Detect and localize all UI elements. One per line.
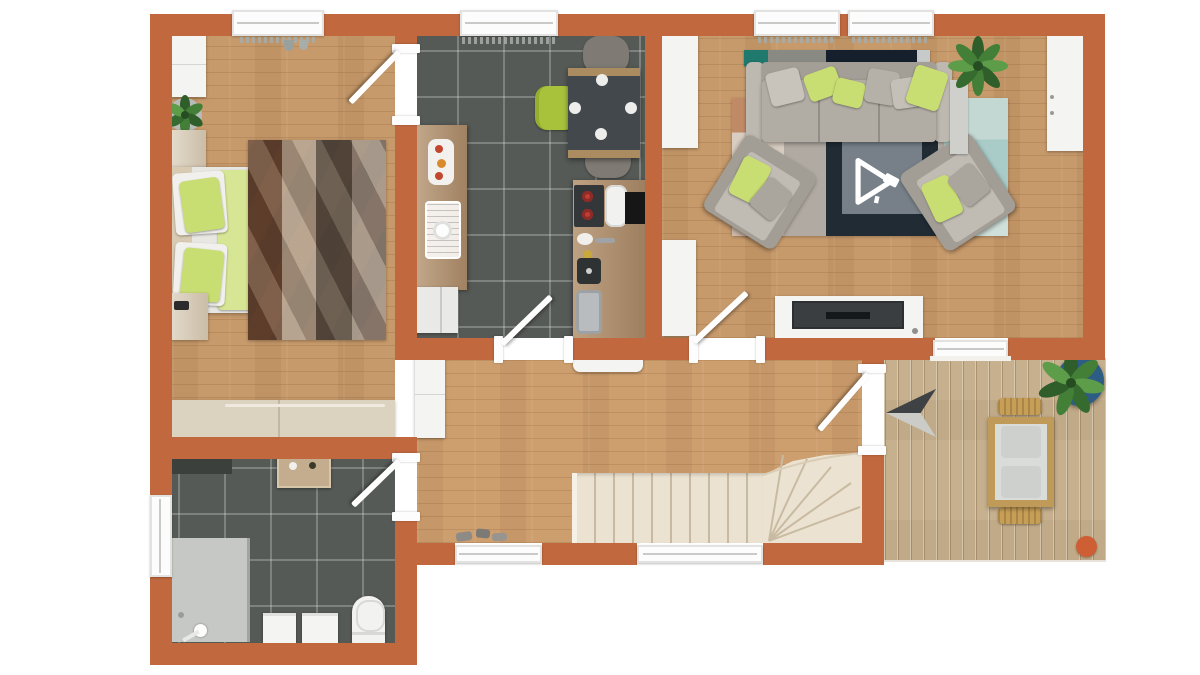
counter-end-cabinet — [414, 287, 458, 333]
sprig-dot — [309, 462, 316, 469]
terrace-door-jamb-top — [858, 364, 886, 373]
bowl-in-rack — [433, 221, 452, 240]
cabinet-split — [440, 287, 442, 333]
staircase-winder — [763, 453, 863, 543]
plate-north — [596, 74, 608, 86]
outdoor-seat-top — [1001, 426, 1041, 458]
bedroom-window — [232, 10, 324, 36]
bedroom-dresser — [165, 400, 395, 437]
wall-right — [1083, 14, 1105, 360]
tv-stand — [775, 296, 923, 338]
toilet — [352, 596, 385, 646]
outdoor-chair-back-top — [998, 398, 1042, 415]
bathroom-side-window — [150, 495, 172, 577]
pot-knob — [586, 268, 592, 274]
outdoor-seat-bottom — [1001, 466, 1041, 498]
tomato-dot — [435, 145, 443, 153]
sofa — [746, 62, 952, 142]
bedroom-door-jamb-bottom — [392, 116, 420, 125]
tall-cabinet-upper — [662, 33, 698, 148]
north-arrow-icon — [884, 386, 938, 440]
plate-west — [569, 102, 581, 114]
shoe-3 — [492, 533, 507, 542]
shower-drain — [178, 612, 184, 618]
wall-hall-bottom-a — [415, 543, 455, 565]
burner-red-1 — [582, 191, 593, 202]
orange-stool — [1076, 536, 1097, 557]
wall-kitchen-living — [645, 36, 662, 338]
shower-glass — [247, 538, 250, 642]
burner-red-2 — [582, 209, 593, 220]
wall-bedroom-bathroom — [150, 437, 415, 459]
staircase-straight-run — [575, 473, 765, 543]
wall-terrace-lower — [862, 450, 884, 565]
wall-hall-bottom-b — [542, 543, 637, 565]
plate-of-food — [428, 139, 454, 185]
soundbar — [826, 312, 870, 319]
soap-dot — [289, 462, 297, 470]
wall-bedroom-kitchen — [395, 118, 417, 340]
vanity-cabinet-2 — [302, 613, 338, 645]
floor-plan-render — [0, 0, 1200, 675]
plate-south — [595, 128, 607, 140]
orange-food-dot — [437, 159, 446, 168]
diamond-rug — [248, 140, 386, 340]
right-sideboard — [1047, 33, 1085, 151]
kitchen-door-jamb-right — [564, 336, 573, 363]
faucet — [595, 238, 615, 243]
living-room-plant-icon — [950, 38, 1006, 94]
dish-rack — [425, 201, 461, 259]
dark-pot — [577, 258, 601, 284]
living-radiator-2 — [852, 37, 930, 43]
staircase-first-step-edge — [572, 473, 577, 543]
living-radiator-1 — [758, 37, 836, 43]
curtain-tie-right — [299, 40, 308, 50]
red-food-dot — [435, 172, 443, 180]
living-window-1 — [754, 10, 840, 36]
dresser-handle — [225, 404, 385, 407]
hall-wardrobe — [415, 352, 445, 438]
rotate-cursor-icon — [852, 158, 904, 210]
living-window-2 — [848, 10, 934, 36]
steel-sink — [576, 290, 602, 334]
wall-kitchen-bottom-left — [395, 338, 500, 360]
tv — [792, 301, 904, 329]
bedroom-wardrobe — [168, 33, 206, 97]
hall-wardrobe-split — [415, 394, 445, 395]
kitchen-window — [460, 10, 558, 36]
outdoor-chair-back-bottom — [998, 507, 1042, 524]
prep-sink — [605, 185, 627, 227]
hall-window — [455, 545, 542, 563]
bed-pillow-lime-top — [179, 176, 226, 233]
sideboard-handle-2 — [1050, 111, 1054, 115]
living-door-jamb-right — [756, 336, 765, 363]
kitchen-counter — [417, 125, 467, 290]
nightstand-top — [170, 130, 206, 172]
wall-living-bottom-b — [762, 338, 935, 360]
wall-bathroom-right-lower — [395, 515, 417, 665]
tall-cabinet-lower — [662, 240, 696, 336]
phone-on-nightstand — [174, 301, 189, 310]
shoe-2 — [476, 528, 491, 538]
toilet-seat-line — [356, 600, 385, 632]
terrace-door-jamb-bottom — [858, 446, 886, 455]
terrace-plant-icon — [1040, 352, 1102, 414]
cooktop — [574, 185, 604, 227]
shower — [168, 538, 250, 642]
toilet-tank — [352, 632, 385, 635]
terrace-window-sill — [930, 356, 1011, 361]
bathroom-door-jamb-bottom — [392, 512, 420, 521]
dining-table — [568, 68, 640, 158]
vanity-cabinet-1 — [263, 613, 296, 645]
wall-kitchen-bottom-right — [567, 338, 645, 360]
wall-bathroom-bottom — [150, 643, 415, 665]
curtain-tie-left — [284, 40, 294, 51]
wardrobe-door-split — [168, 64, 206, 65]
plate-east — [625, 102, 637, 114]
kitchen-radiator — [462, 37, 556, 44]
media-knob — [912, 328, 918, 334]
counter-bowl — [577, 233, 593, 245]
sideboard-handle-1 — [1050, 95, 1054, 99]
outdoor-table — [988, 417, 1054, 507]
wall-living-bottom-a — [645, 338, 695, 360]
nightstand-bottom — [168, 293, 208, 340]
stairs-window — [637, 545, 763, 563]
wall-left-upper — [150, 14, 172, 495]
